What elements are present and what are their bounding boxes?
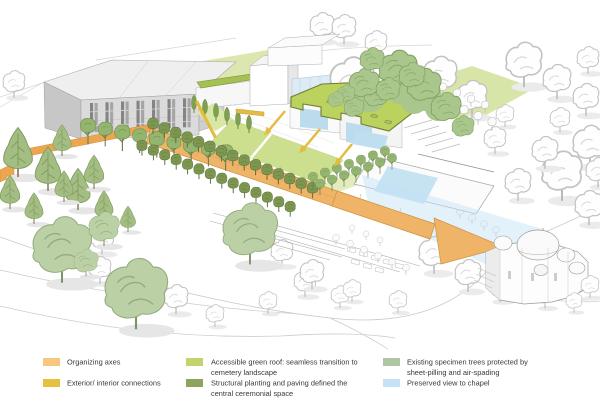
- svg-text:sheet-pilling and air-spading: sheet-pilling and air-spading: [407, 368, 499, 377]
- svg-text:Existing specimen trees protec: Existing specimen trees protected by: [407, 358, 528, 367]
- svg-text:Organizing axes: Organizing axes: [67, 358, 121, 367]
- svg-text:Exterior/ interior connections: Exterior/ interior connections: [67, 379, 161, 388]
- svg-text:Preserved view to chapel: Preserved view to chapel: [407, 379, 490, 388]
- svg-text:Accessible green roof: seamles: Accessible green roof: seamless transiti…: [211, 358, 358, 367]
- svg-text:cemetery landscape: cemetery landscape: [211, 368, 277, 377]
- svg-text:central ceremonial space: central ceremonial space: [211, 389, 293, 398]
- svg-text:Structural planting and paving: Structural planting and paving defined t…: [211, 379, 347, 388]
